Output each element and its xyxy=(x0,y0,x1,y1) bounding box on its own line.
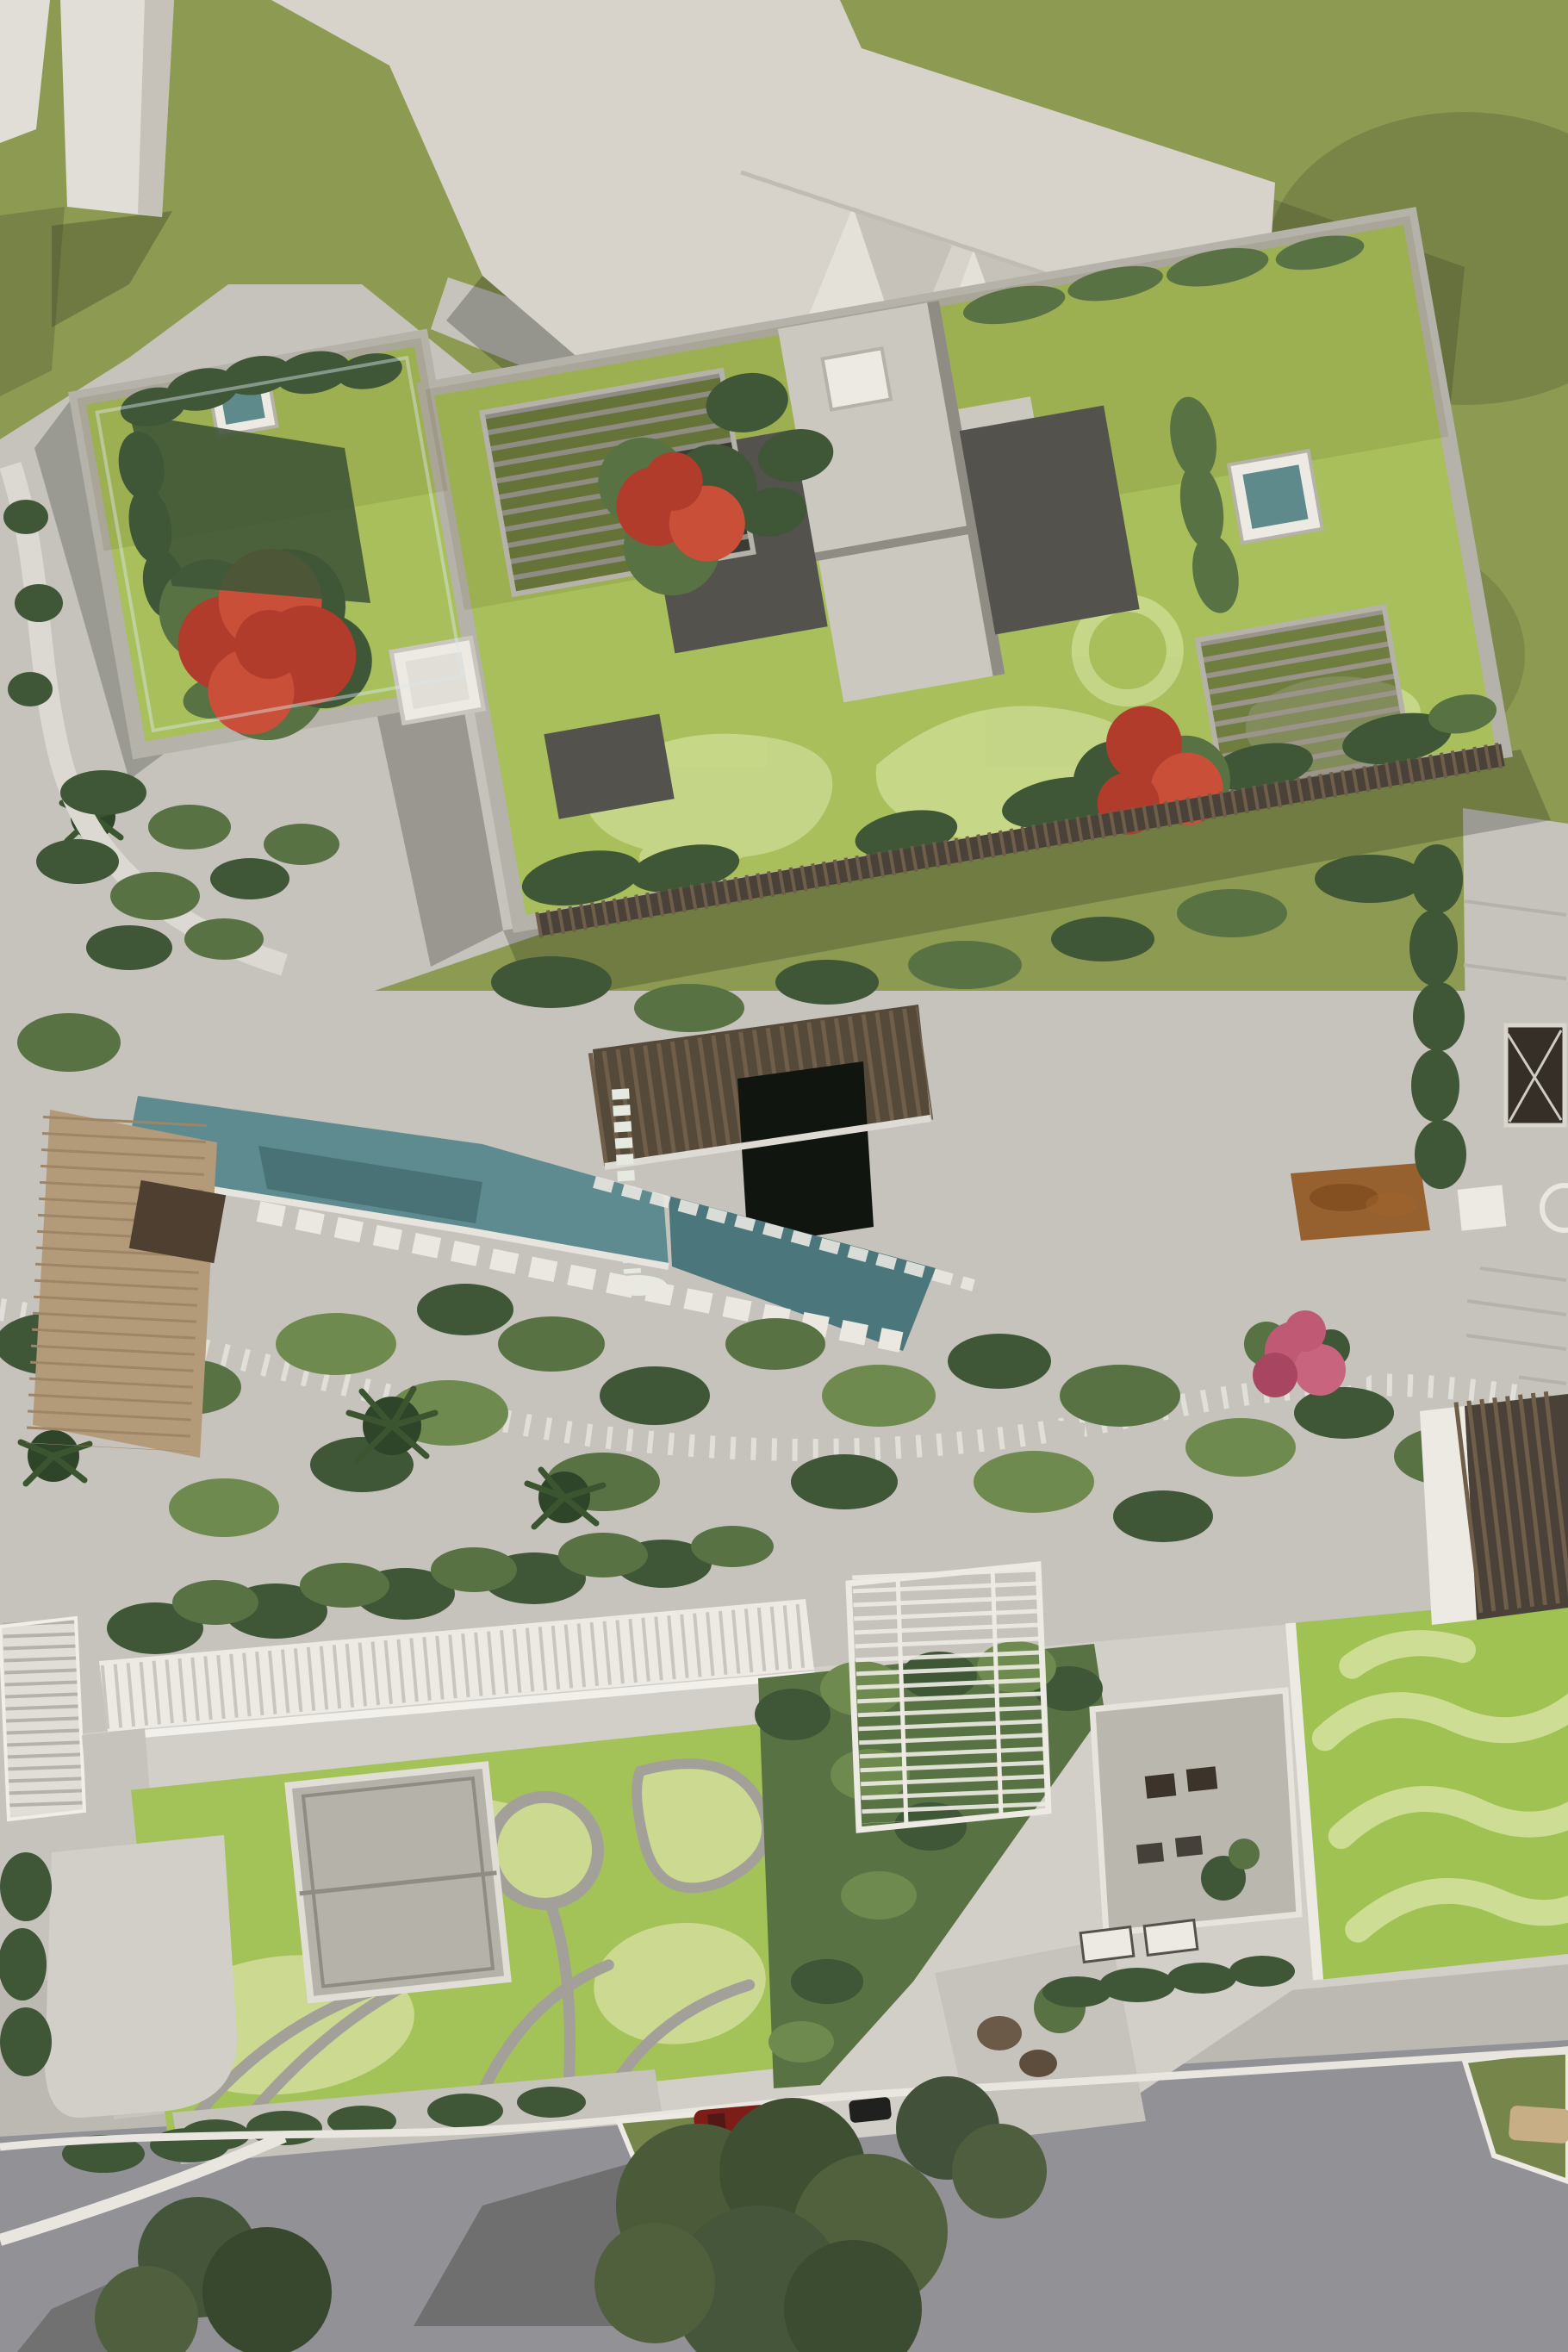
beige-car xyxy=(1509,2106,1568,2144)
deck-planter xyxy=(129,1180,226,1263)
sunken-patio xyxy=(1092,1690,1299,1933)
void-opening xyxy=(737,1061,874,1246)
core-skylight xyxy=(823,348,891,409)
wood-slat-roof xyxy=(1420,1394,1568,1625)
roof-box-left xyxy=(289,1764,508,2000)
wood-deck xyxy=(33,1110,226,1458)
wavy-roof xyxy=(1291,1597,1568,1980)
swirl-roof xyxy=(131,1723,801,2132)
outdoor-seat xyxy=(977,2016,1022,2050)
scooter xyxy=(849,2097,892,2124)
render-canvas xyxy=(0,0,1568,2352)
left-grid-pergola xyxy=(0,1618,84,1820)
white-paver xyxy=(1458,1185,1507,1230)
outdoor-seat xyxy=(1019,2050,1057,2077)
lattice-panel xyxy=(1506,1025,1565,1125)
rust-planting-bed xyxy=(1291,1163,1430,1241)
spa-box-right xyxy=(1229,451,1322,543)
aerial-render xyxy=(0,0,1568,2352)
